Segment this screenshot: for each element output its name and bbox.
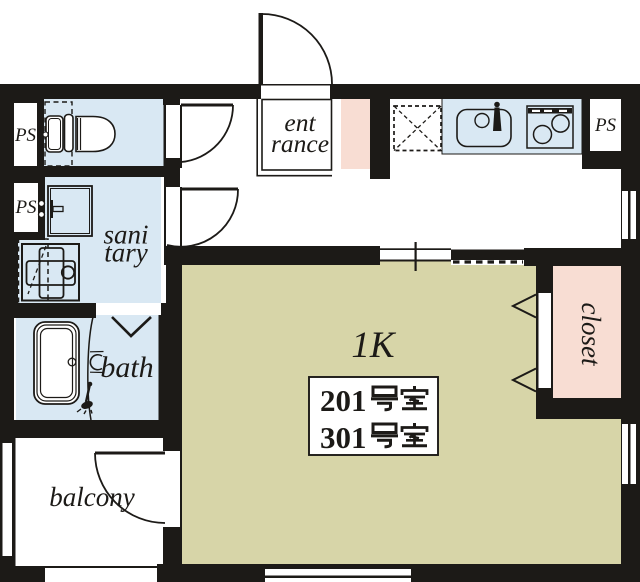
- svg-text:PS: PS: [14, 125, 37, 146]
- svg-text:201: 201: [320, 383, 367, 418]
- svg-text:1K: 1K: [351, 325, 397, 366]
- svg-text:PS: PS: [14, 197, 37, 218]
- svg-text:301: 301: [320, 420, 367, 455]
- svg-text:rance: rance: [271, 129, 329, 158]
- svg-text:closet: closet: [576, 303, 606, 367]
- svg-text:PS: PS: [594, 115, 617, 136]
- svg-text:bath: bath: [100, 351, 153, 384]
- svg-text:balcony: balcony: [49, 482, 134, 512]
- svg-text:tary: tary: [104, 238, 148, 268]
